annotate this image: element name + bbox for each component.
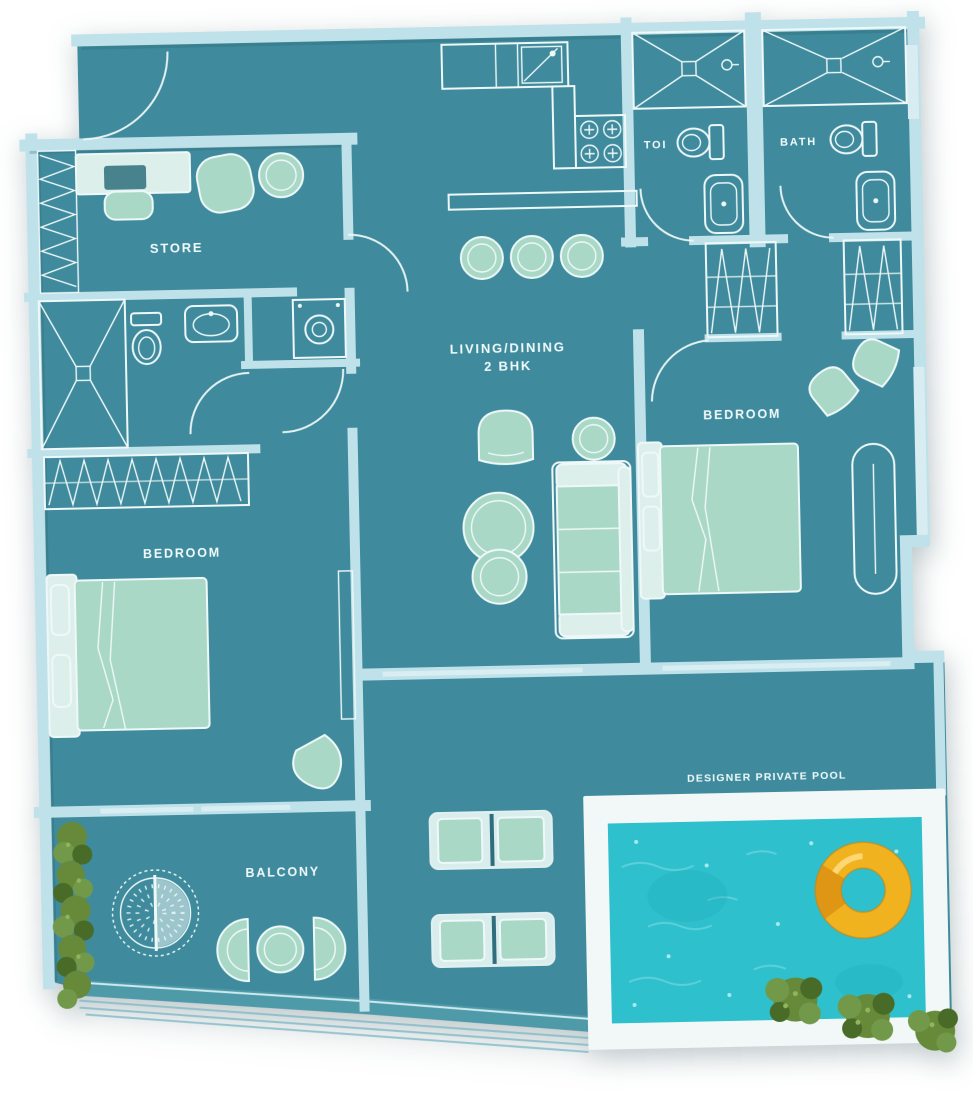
sun-lounger-icon <box>432 913 555 968</box>
window-right-top <box>907 45 920 119</box>
floor-plan: STORE TOI BATH LIVING/DINING 2 BHK BEDRO… <box>23 16 958 1071</box>
bar-stool-icon <box>560 234 603 277</box>
store-label: STORE <box>150 240 204 256</box>
bedroom-left-label: BEDROOM <box>143 546 221 562</box>
bedroom-right-label: BEDROOM <box>703 407 781 423</box>
round-pouf-icon <box>259 153 304 198</box>
private-pool <box>583 788 958 1060</box>
sun-lounger-icon <box>430 811 553 870</box>
stool-icon <box>572 417 615 460</box>
bed-icon <box>660 443 801 594</box>
living-dining-label: LIVING/DINING <box>450 339 566 356</box>
balcony-label: BALCONY <box>245 865 320 881</box>
bar-stool-icon <box>460 237 503 280</box>
desk-monitor-icon <box>104 165 146 190</box>
sofa-icon <box>552 461 634 639</box>
desk-chair-icon <box>104 191 153 220</box>
bed-icon <box>75 578 210 731</box>
floor-plan-canvas: STORE TOI BATH LIVING/DINING 2 BHK BEDRO… <box>0 0 973 1100</box>
bath-label: BATH <box>780 136 817 149</box>
bar-stool-icon <box>510 236 553 279</box>
armchair-icon <box>478 410 533 465</box>
toi-label: TOI <box>644 139 668 151</box>
living-dining-sublabel: 2 BHK <box>484 358 532 374</box>
